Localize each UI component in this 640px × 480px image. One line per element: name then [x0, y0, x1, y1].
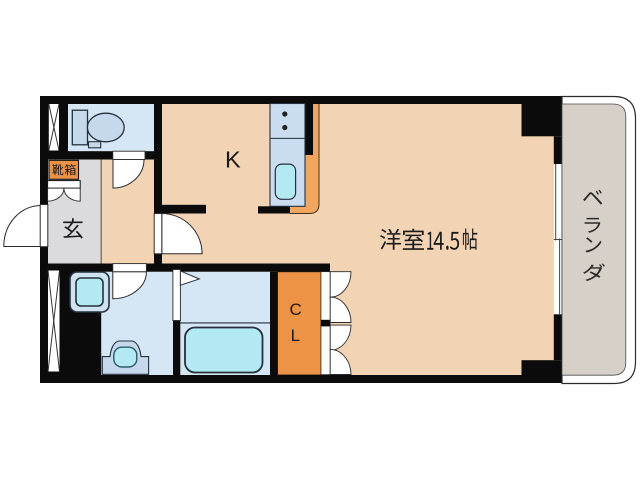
- svg-text:C: C: [289, 300, 301, 319]
- svg-text:L: L: [291, 326, 300, 345]
- svg-text:K: K: [225, 147, 241, 173]
